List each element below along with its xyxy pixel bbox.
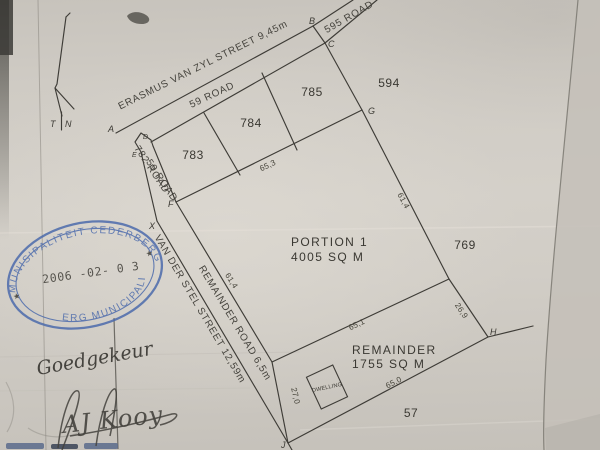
point-label-x: X — [148, 221, 156, 231]
north-label-n: N — [65, 119, 72, 129]
boundary-g-h — [362, 110, 533, 337]
handwriting-approved: Goedgekeur — [35, 337, 156, 379]
point-label-j: J — [280, 440, 286, 450]
stamp-bottom-arc: ERG MUNICIPALITY — [0, 0, 155, 342]
dwelling-box: DWELLING — [306, 365, 347, 409]
point-label-f: F — [168, 199, 174, 209]
boundary-lines — [116, 0, 533, 450]
left-frame-line — [38, 0, 46, 450]
road-label-59: 59 ROAD — [188, 80, 237, 110]
measurement-65-0: 65,0 — [384, 375, 403, 391]
ink-smudge — [127, 12, 149, 24]
point-label-c: C — [328, 39, 335, 49]
dwelling-label: DWELLING — [312, 382, 343, 394]
top-left-corner — [0, 0, 13, 55]
parcel-label-785: 785 — [301, 85, 323, 99]
remainder-area: 1755 SQ M — [352, 357, 425, 371]
point-label-e: E — [132, 152, 137, 159]
portion1-area: 4005 SQ M — [291, 250, 364, 264]
boundary-w-j — [272, 362, 288, 443]
measurement-27-0: 27,0 — [289, 387, 302, 406]
divider-783-784 — [204, 113, 240, 175]
stamp-date: 2006 -02- 0 3 — [41, 259, 140, 286]
boundary-c-g — [325, 43, 362, 110]
stamp-star-left: ★ — [12, 291, 21, 301]
point-label-b: B — [309, 16, 315, 26]
parcel-label-594: 594 — [378, 76, 400, 90]
point-label-a: A — [107, 124, 114, 134]
measurement-61-4-east: 61,4 — [396, 191, 412, 210]
remainder-title: REMAINDER — [352, 343, 437, 357]
divider-784-785 — [262, 73, 297, 150]
boundary-f-g — [176, 110, 362, 202]
road-label-595: 595 ROAD — [323, 0, 376, 36]
point-label-d: D — [143, 134, 148, 141]
north-label-t: T — [50, 119, 57, 129]
north-arrow — [55, 13, 74, 130]
erasmus-street-lower-line — [151, 43, 325, 142]
scanned-survey-diagram: T N DWELLING ERASMUS VAN ZYL STREET 9,45… — [0, 0, 600, 450]
erasmus-street-upper-line — [116, 26, 313, 133]
measurement-61-4-west: 61,4 — [223, 271, 240, 290]
measurement-26-9: 26,9 — [453, 301, 470, 320]
parcel-label-57: 57 — [404, 406, 418, 420]
point-label-g: G — [368, 106, 375, 116]
parcel-label-784: 784 — [240, 116, 262, 130]
portion1-title: PORTION 1 — [291, 235, 368, 249]
point-label-h: H — [490, 327, 497, 337]
road-label-59-small: 59 ROAD — [143, 158, 179, 204]
parcel-label-783: 783 — [182, 148, 204, 162]
scan-edges — [0, 0, 600, 450]
parcel-label-769: 769 — [454, 238, 476, 252]
